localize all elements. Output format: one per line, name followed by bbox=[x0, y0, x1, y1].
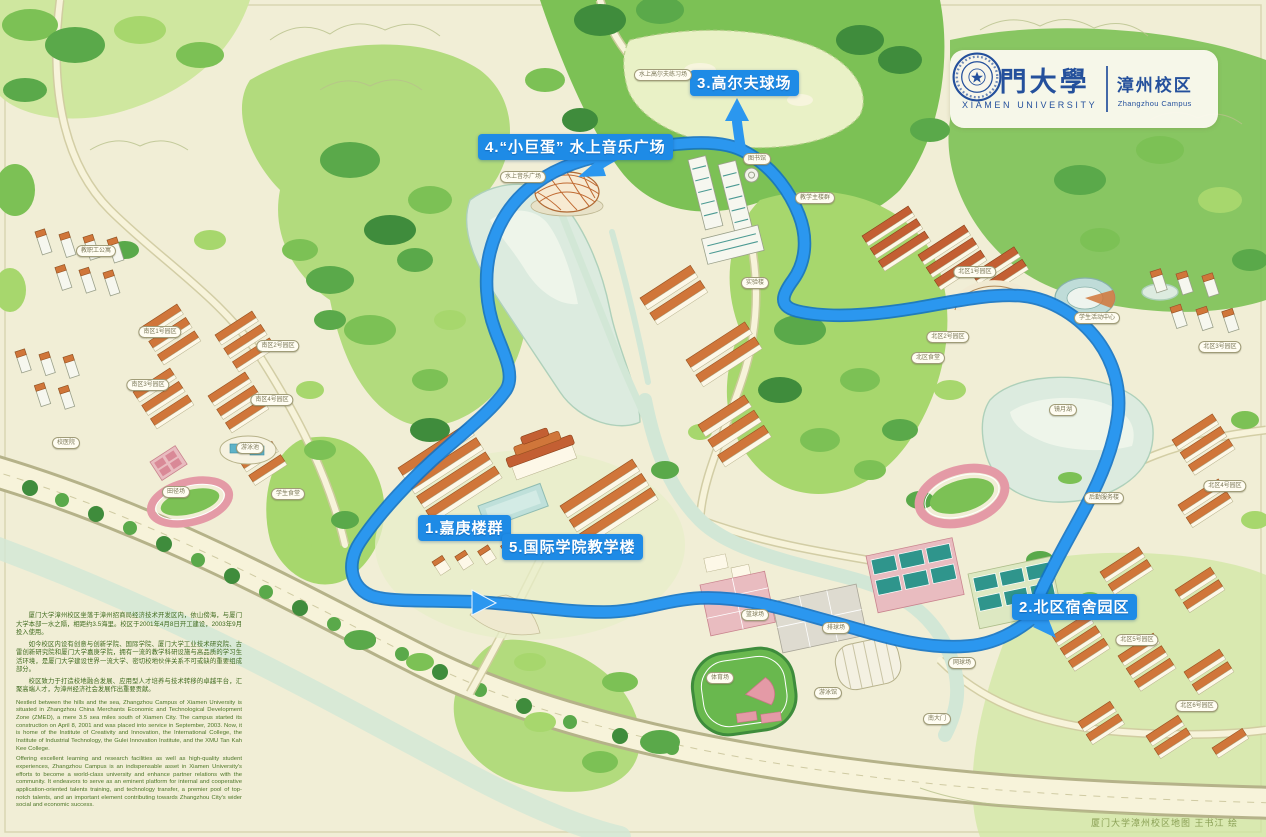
university-logo-card: 厦門大學 XIAMEN UNIVERSITY 漳州校区 Zhangzhou Ca… bbox=[950, 50, 1218, 128]
building-label-pill: 游泳馆 bbox=[814, 687, 842, 699]
building-label-pill: 南区3号园区 bbox=[126, 379, 169, 391]
building-label-pill: 南区4号园区 bbox=[250, 394, 293, 406]
building-label-pill: 篮球场 bbox=[741, 609, 769, 621]
building-label-pill: 北区4号园区 bbox=[1203, 480, 1246, 492]
building-label-pill: 南大门 bbox=[923, 713, 951, 725]
building-label-pill: 田径场 bbox=[162, 486, 190, 498]
map-credit: 厦门大学漳州校区地图 王书江 绘 bbox=[1091, 816, 1238, 829]
campus-name-zh: 漳州校区 bbox=[1117, 71, 1193, 96]
building-label-pill: 北区2号园区 bbox=[926, 331, 969, 343]
building-label-pill: 南区2号园区 bbox=[256, 340, 299, 352]
building-label-pill: 校医院 bbox=[52, 437, 80, 449]
building-label-pill: 学生活动中心 bbox=[1074, 312, 1120, 324]
building-label-pill: 教职工公寓 bbox=[76, 245, 116, 257]
building-label-pill: 教学主楼群 bbox=[795, 192, 835, 204]
building-label-pill: 镜月湖 bbox=[1049, 404, 1077, 416]
building-label-pill: 水上高尔夫练习场 bbox=[634, 69, 692, 81]
description-paragraph-zh: 厦门大学漳州校区坐落于漳州招商局经济技术开发区内，依山傍海，与厦门大学本部一水之… bbox=[16, 612, 242, 638]
building-label-pill: 实验楼 bbox=[741, 277, 769, 289]
building-label-pill: 水上音乐广场 bbox=[500, 171, 546, 183]
building-label-pill: 体育场 bbox=[706, 672, 734, 684]
campus-name-en: Zhangzhou Campus bbox=[1118, 99, 1192, 108]
description-paragraph-en: Offering excellent learning and research… bbox=[16, 756, 242, 810]
building-label-pill: 北区3号园区 bbox=[1198, 341, 1241, 353]
description-paragraph-zh: 如今校区内设有创意与创新学院、国际学院、厦门大学工业技术研究院、古雷创新研究院和… bbox=[16, 641, 242, 675]
description-paragraph-en: Nestled between the hills and the sea, Z… bbox=[16, 700, 242, 754]
route-stop-label: 1.嘉庚楼群 bbox=[418, 515, 511, 541]
building-label-pill: 后勤服务楼 bbox=[1084, 492, 1124, 504]
campus-map-poster: 1.嘉庚楼群 2.北区宿舍园区 3.高尔夫球场 4.“小巨蛋” 水上音乐广场 5… bbox=[0, 0, 1266, 837]
building-label-pill: 北区6号园区 bbox=[1175, 700, 1218, 712]
building-label-pill: 北区食堂 bbox=[911, 352, 945, 364]
route-stop-label: 3.高尔夫球场 bbox=[690, 70, 799, 96]
logo-divider bbox=[1106, 66, 1108, 112]
building-label-pill: 图书馆 bbox=[743, 153, 771, 165]
building-label-pill: 网球场 bbox=[948, 657, 976, 669]
building-label-pill: 游泳池 bbox=[236, 442, 264, 454]
description-paragraph-zh: 校区致力于打造校地融合发展、应用型人才培养与技术转移的卓越平台，汇聚高端人才，为… bbox=[16, 678, 242, 695]
building-label-pill: 学生食堂 bbox=[271, 488, 305, 500]
route-stop-label: 4.“小巨蛋” 水上音乐广场 bbox=[478, 134, 673, 160]
campus-description: 厦门大学漳州校区坐落于漳州招商局经济技术开发区内，依山傍海，与厦门大学本部一水之… bbox=[16, 612, 242, 813]
building-label-pill: 南区1号园区 bbox=[138, 326, 181, 338]
route-stop-label: 5.国际学院教学楼 bbox=[502, 534, 643, 560]
route-stop-label: 2.北区宿舍园区 bbox=[1012, 594, 1137, 620]
building-label-pill: 北区5号园区 bbox=[1115, 634, 1158, 646]
building-label-pill: 北区1号园区 bbox=[953, 266, 996, 278]
xmu-seal-icon bbox=[950, 50, 1004, 104]
building-label-pill: 排球场 bbox=[822, 622, 850, 634]
